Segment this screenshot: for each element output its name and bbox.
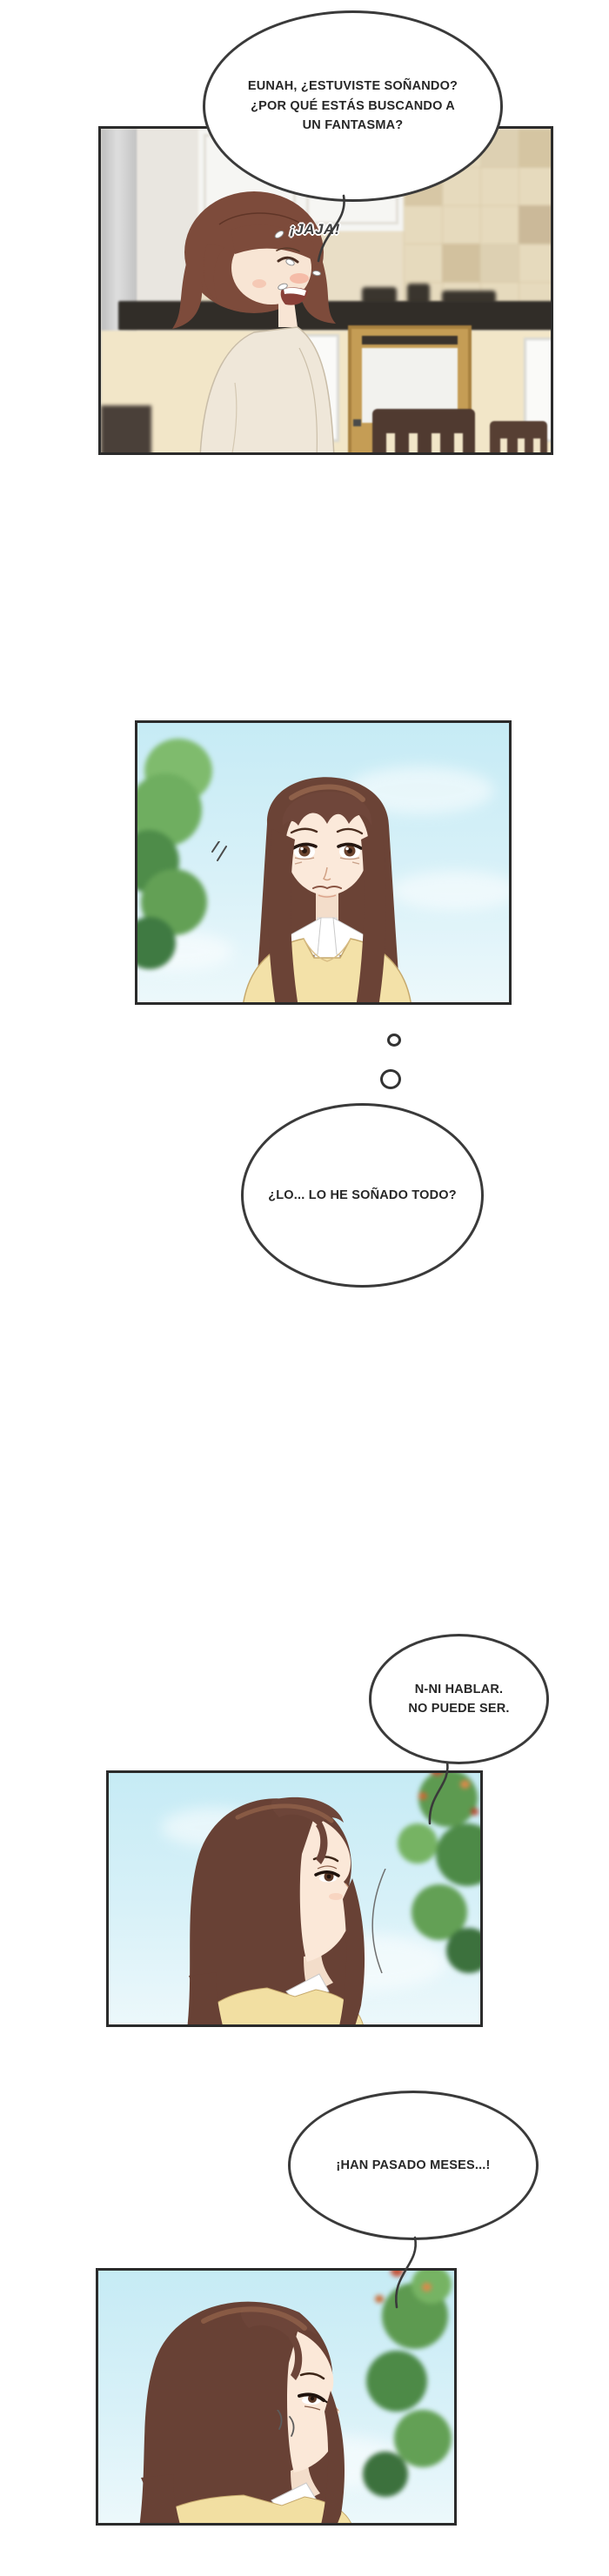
thought-bubble: ¿LO... LO HE SOÑADO TODO?: [241, 1103, 484, 1288]
chair: [490, 421, 547, 455]
speech-bubble-months: ¡HAN PASADO MESES...!: [288, 2091, 539, 2240]
speech-line: ¿POR QUÉ ESTÁS BUSCANDO A: [251, 97, 455, 116]
speech-line: UN FANTASMA?: [303, 116, 404, 135]
woman-profile-down-illustration: [111, 2288, 381, 2526]
speech-bubble-tail: [383, 2234, 431, 2312]
speech-line: EUNAH, ¿ESTUVISTE SOÑANDO?: [248, 77, 458, 96]
speech-bubble-top: EUNAH, ¿ESTUVISTE SOÑANDO? ¿POR QUÉ ESTÁ…: [203, 10, 503, 202]
motion-line: [368, 1869, 394, 1977]
chair: [372, 409, 475, 455]
speech-line: N-NI HABLAR.: [415, 1680, 503, 1699]
speech-line: ¡HAN PASADO MESES...!: [336, 2156, 490, 2175]
webtoon-page: ¡JAJA! EUNAH, ¿ESTUVISTE SOÑANDO? ¿POR Q…: [0, 0, 609, 2576]
worry-tick: [207, 841, 231, 867]
woman-profile-illustration: [144, 1777, 405, 2027]
speech-bubble-disbelief: N-NI HABLAR. NO PUEDE SER.: [369, 1634, 549, 1764]
thought-line: ¿LO... LO HE SOÑADO TODO?: [268, 1186, 457, 1205]
thought-trail-bubble-large: [380, 1069, 401, 1089]
breath-squiggle: [272, 2410, 300, 2445]
thought-trail-bubble-small: [387, 1034, 401, 1047]
girl-illustration: [220, 739, 438, 1005]
speech-bubble-tail: [304, 187, 357, 270]
speech-line: NO PUEDE SER.: [408, 1699, 509, 1718]
speech-bubble-tail: [418, 1759, 461, 1829]
dark-cabinet: [101, 405, 151, 455]
panel-worried-girl: [135, 720, 512, 1005]
